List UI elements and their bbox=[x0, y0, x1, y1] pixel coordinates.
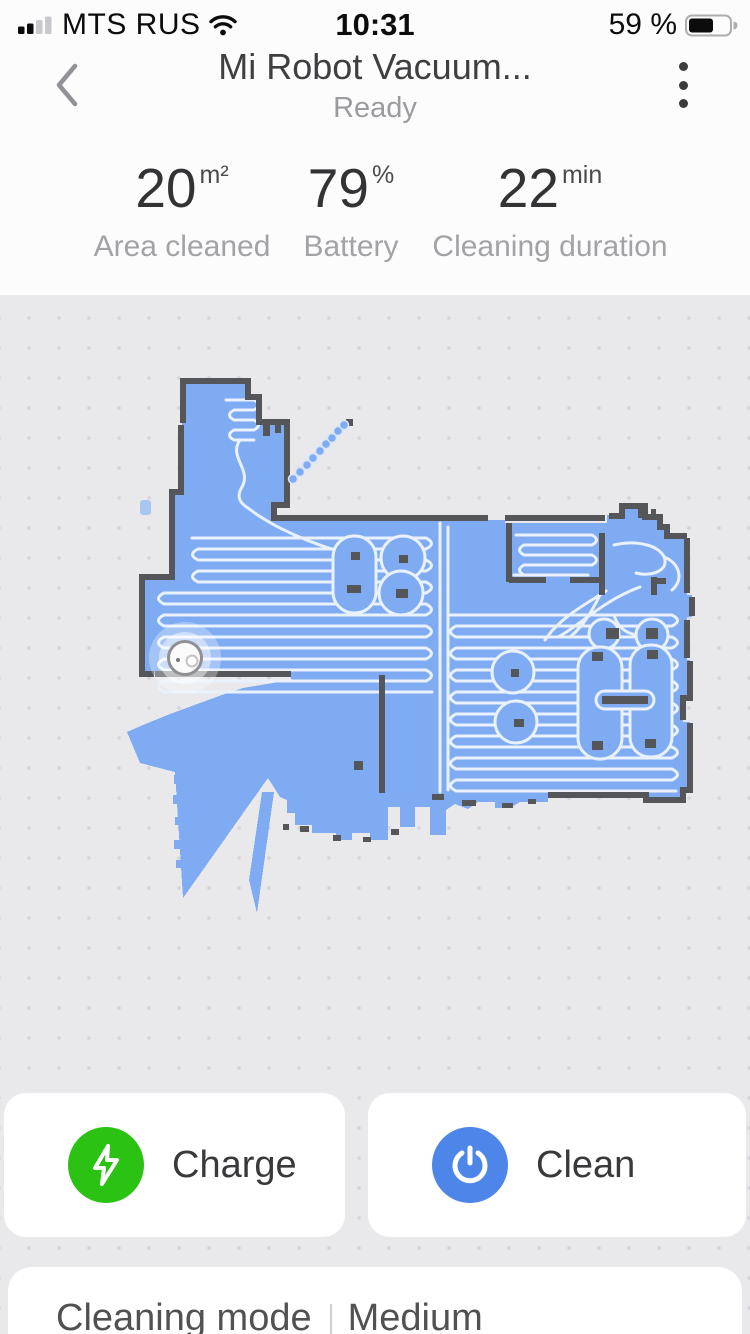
stat-duration: 22min Cleaning duration bbox=[432, 158, 667, 264]
cleaning-mode-value: Medium bbox=[348, 1297, 483, 1334]
stat-value: 79 bbox=[308, 157, 369, 219]
stat-unit: min bbox=[562, 161, 602, 189]
kebab-dot bbox=[679, 62, 688, 71]
battery-icon bbox=[685, 14, 738, 37]
charge-lightning-icon bbox=[89, 1143, 123, 1187]
device-status: Ready bbox=[0, 92, 750, 125]
clean-button[interactable]: Clean bbox=[368, 1093, 746, 1237]
status-bar: MTS RUS 10:31 59 % bbox=[0, 0, 750, 44]
cleaning-mode-label: Cleaning mode bbox=[56, 1297, 312, 1334]
stats-row: 20m² Area cleaned 79% Battery 22min Clea… bbox=[0, 150, 750, 280]
stat-unit: % bbox=[372, 161, 394, 189]
stat-label: Cleaning duration bbox=[432, 230, 667, 264]
app-screen: MTS RUS 10:31 59 % Mi Robot Vacuum... Re… bbox=[0, 0, 750, 1334]
cleaning-mode-row[interactable]: Cleaning mode Medium bbox=[8, 1267, 742, 1334]
stat-battery: 79% Battery bbox=[303, 158, 398, 264]
path-trail-dashes bbox=[289, 421, 349, 484]
stat-value: 22 bbox=[498, 157, 559, 219]
separator bbox=[330, 1304, 332, 1334]
stat-value: 20 bbox=[135, 157, 196, 219]
map-unexplored-sliver bbox=[249, 792, 274, 913]
stat-label: Battery bbox=[303, 230, 398, 264]
stat-area-cleaned: 20m² Area cleaned bbox=[94, 158, 271, 264]
charge-button-label: Charge bbox=[172, 1144, 297, 1187]
more-menu-button[interactable] bbox=[671, 58, 695, 112]
kebab-dot bbox=[679, 81, 688, 90]
map-unexplored-area bbox=[127, 680, 291, 898]
stat-label: Area cleaned bbox=[94, 230, 271, 264]
charge-button[interactable]: Charge bbox=[4, 1093, 345, 1237]
clean-power-icon bbox=[449, 1144, 491, 1186]
kebab-dot bbox=[679, 99, 688, 108]
nav-header: Mi Robot Vacuum... Ready bbox=[0, 44, 750, 140]
page-title: Mi Robot Vacuum... bbox=[0, 46, 750, 88]
robot-marker bbox=[149, 622, 221, 694]
battery-percent-label: 59 % bbox=[609, 8, 677, 42]
clean-button-label: Clean bbox=[536, 1144, 635, 1187]
stat-unit: m² bbox=[200, 161, 229, 189]
